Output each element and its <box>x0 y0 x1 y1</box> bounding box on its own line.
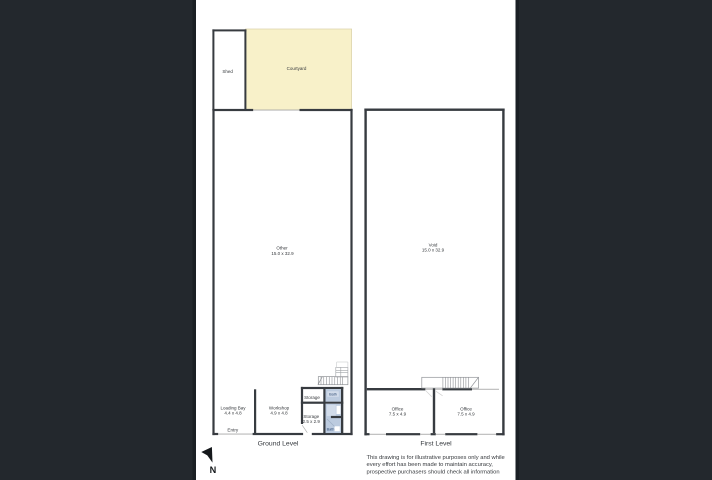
svg-text:Shed: Shed <box>222 69 233 74</box>
svg-text:7.5 x 4.9: 7.5 x 4.9 <box>389 412 407 417</box>
svg-text:4.4 x 4.8: 4.4 x 4.8 <box>224 411 242 416</box>
svg-text:2.5 x 2.9: 2.5 x 2.9 <box>303 419 321 424</box>
svg-text:Ground Level: Ground Level <box>258 440 299 447</box>
svg-text:This drawing is for illustrati: This drawing is for illustrative purpose… <box>367 455 505 461</box>
svg-text:Bath: Bath <box>327 428 335 432</box>
svg-text:4.9 x 4.8: 4.9 x 4.8 <box>270 411 288 416</box>
svg-text:Storage: Storage <box>304 395 320 400</box>
svg-text:Other: Other <box>276 246 288 251</box>
svg-text:Entry: Entry <box>227 427 239 432</box>
svg-text:15.0 x 32.9: 15.0 x 32.9 <box>422 248 445 253</box>
svg-text:First Level: First Level <box>420 440 452 447</box>
svg-text:Void: Void <box>429 242 438 247</box>
svg-text:15.0 x 32.9: 15.0 x 32.9 <box>271 251 294 256</box>
svg-text:prospective purchasers should: prospective purchasers should check all … <box>367 469 500 475</box>
svg-text:7.5 x 4.9: 7.5 x 4.9 <box>457 412 475 417</box>
svg-text:Bath: Bath <box>329 393 337 397</box>
svg-text:Courtyard: Courtyard <box>287 66 307 71</box>
svg-text:every effort has been made to: every effort has been made to maintain a… <box>367 462 494 468</box>
svg-text:N: N <box>210 465 217 475</box>
